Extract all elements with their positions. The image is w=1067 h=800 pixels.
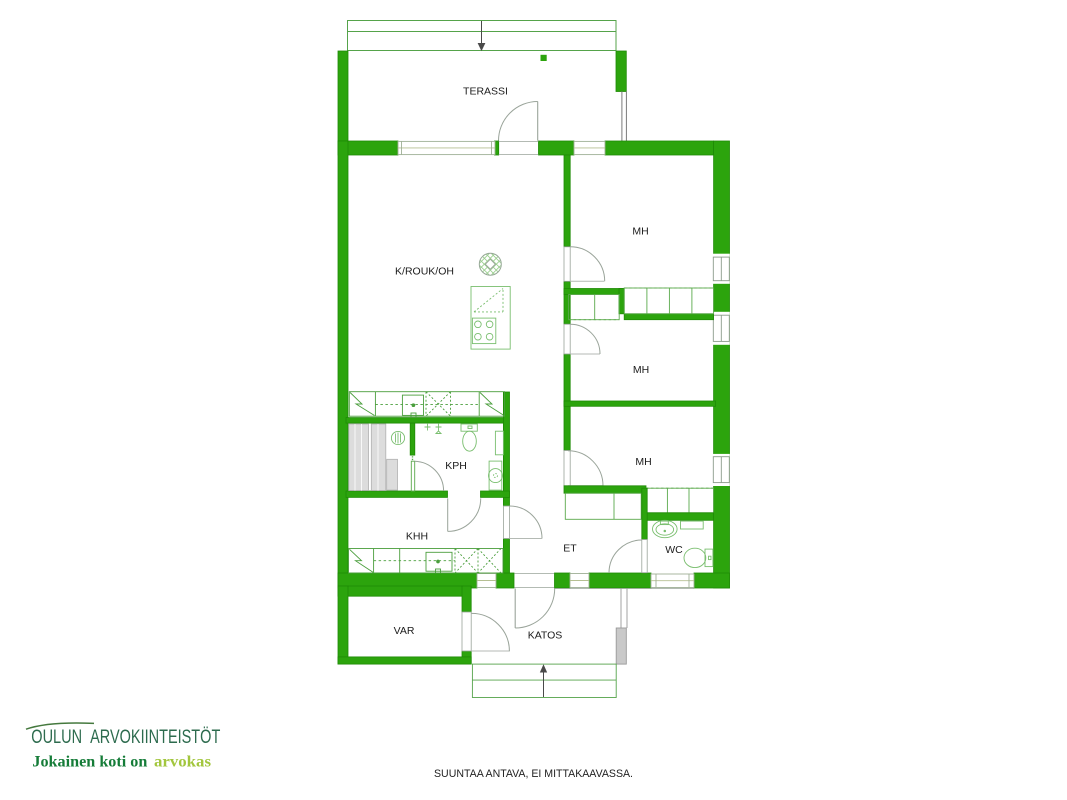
svg-text:WC: WC — [665, 544, 683, 556]
svg-text:arvokas: arvokas — [154, 754, 211, 771]
svg-text:ET: ET — [563, 543, 577, 555]
svg-text:MH: MH — [635, 456, 651, 468]
svg-text:SUUNTAA ANTAVA, EI MITTAKAAVAS: SUUNTAA ANTAVA, EI MITTAKAAVASSA. — [434, 768, 633, 780]
svg-text:K/ROUK/OH: K/ROUK/OH — [395, 266, 454, 278]
svg-text:VAR: VAR — [394, 625, 415, 637]
svg-text:Jokainen koti on: Jokainen koti on — [32, 754, 147, 771]
svg-text:MH: MH — [632, 226, 648, 238]
svg-text:KPH: KPH — [445, 460, 467, 472]
svg-text:KATOS: KATOS — [528, 630, 563, 642]
svg-text:KHH: KHH — [406, 531, 428, 543]
svg-text:OULUN ARVOKIINTEISTÖT: OULUN ARVOKIINTEISTÖT — [31, 727, 220, 748]
svg-text:MH: MH — [633, 364, 649, 376]
svg-text:TERASSI: TERASSI — [463, 86, 508, 98]
